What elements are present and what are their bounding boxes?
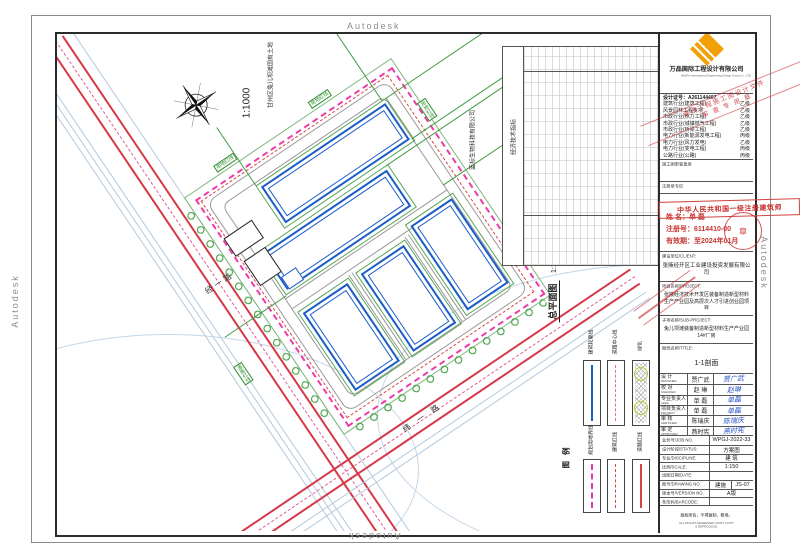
- econ-table-rule: [523, 215, 659, 216]
- autodesk-watermark-top: Autodesk: [347, 21, 401, 31]
- info-table: 业务号/JOB NO.WPGJ-2022-33 设计阶段/STATUS:方案图 …: [660, 436, 753, 506]
- subproject-section: 子项名称/SUB-PROJECT: 兔儿坝滩装备制造新型材料生产产业园14#厂房: [660, 316, 753, 344]
- signature-row: 审 定APPROVED 燕时宪 燕时宪: [660, 426, 753, 436]
- autodesk-watermark-bottom: Autodesk: [347, 531, 401, 541]
- legend-label: 绿化: [637, 341, 644, 351]
- legend-label: 建筑轮廓线: [588, 329, 595, 354]
- legend-line: [640, 464, 642, 508]
- north-compass-icon: [163, 72, 230, 139]
- signature: 单磊: [726, 395, 741, 406]
- autodesk-watermark-right: Autodesk: [759, 236, 769, 290]
- sheet-title: 1-1剖面: [662, 358, 751, 368]
- info-row: 版本号/VERSION NO.A版: [660, 489, 753, 498]
- qualification-row: 公路行业(公路)丙级: [660, 153, 753, 159]
- architect-stamp-title: 中华人民共和国一级注册建筑师: [659, 198, 800, 219]
- dimension-line: [385, 34, 483, 99]
- review-stamp-section: 施工图审查盖章: [660, 160, 753, 182]
- signature-row: 校 对CHECKED 赵 琳 赵琳: [660, 384, 753, 394]
- client-name: 张掖经开区工业建设投资发展有限公司: [662, 263, 751, 277]
- signature: 贾广武: [723, 374, 745, 385]
- legend-swatch-building-redline: [607, 459, 625, 513]
- client-section: 建设单位/CLIENT: 张掖经开区工业建设投资发展有限公司: [660, 252, 753, 282]
- round-seal-stamp: 章: [724, 212, 762, 250]
- legend-line: [615, 464, 616, 508]
- copyright-section: 版权所有，不得复制、套用。 ALL RIGHTS RESERVED, DON'T…: [660, 506, 753, 533]
- econ-table-caption: 经济技术指标: [509, 119, 518, 155]
- autodesk-watermark-left: Autodesk: [10, 274, 20, 328]
- legend-green-circle: [634, 401, 648, 415]
- company-name-en: WanPin International Engineering Design …: [681, 74, 732, 77]
- subproject-name: 兔儿坝滩装备制造新型材料生产产业园14#厂房: [662, 326, 751, 339]
- signature-table: 设 计DESIGNED 贾广武 贾广武 校 对CHECKED 赵 琳 赵琳 专业…: [660, 374, 753, 436]
- signature: 燕时宪: [723, 426, 745, 436]
- legend-swatch-road-redline: [632, 459, 650, 513]
- info-row-drawing-no: 图号/DRAWING NO.建施JS-07: [660, 480, 753, 489]
- signature-row: 项目负责人PROJECT CHIEF 单 磊 单磊: [660, 405, 753, 415]
- legend-swatch-building-outline: [583, 360, 601, 426]
- sheet-title-section: 图纸名称/TITLE: 1-1剖面: [660, 344, 753, 374]
- signature-row: 审 核CERTIFIED 陈瑞庆 陈瑞庆: [660, 415, 753, 425]
- legend-title: 图 例: [561, 445, 572, 468]
- copyright-en: ALL RIGHTS RESERVED, DON'T COPY & REPROD…: [679, 521, 735, 528]
- info-row: 出图日期/DATE:: [660, 471, 753, 480]
- copyright-zh: 版权所有，不得复制、套用。: [669, 513, 743, 519]
- info-row: 条形码/BARCODE:: [660, 497, 753, 506]
- legend-swatch-road-centerline: [607, 360, 625, 426]
- legend-line: [615, 365, 616, 421]
- legend-swatch-planning-boundary: [583, 459, 601, 513]
- econ-table-caption-col: [503, 47, 524, 265]
- legend-line: [591, 464, 593, 508]
- economic-indicator-table: 经济技术指标: [502, 46, 660, 266]
- legend-label: 建筑红线: [612, 432, 619, 452]
- info-row: 业务号/JOB NO.WPGJ-2022-33: [660, 436, 753, 445]
- plan-title: 总平面图: [548, 280, 560, 322]
- econ-table-rule: [523, 71, 659, 72]
- legend-label: 道路中心线: [612, 329, 619, 354]
- company-logo-icon: [690, 32, 724, 66]
- legend-label: 道路红线: [637, 432, 644, 452]
- registration-stamp-section: 注册章专栏: [660, 182, 753, 194]
- signature: 单磊: [726, 405, 741, 416]
- legend-swatch-greenery: [632, 360, 650, 426]
- legend-label: 规划用地界线: [588, 425, 595, 455]
- adjacent-company-label: 蓝标生物科技有限公司: [468, 110, 477, 170]
- legend-line: [591, 365, 593, 421]
- drawing-sheet: Autodesk Autodesk Autodesk Autodesk: [0, 0, 800, 558]
- land-parcel-label: 甘州区兔儿坝滩国有土地: [266, 42, 275, 108]
- company-name: 万品国际工程设计有限公司: [662, 63, 750, 73]
- info-row: 比例/SCALE:1:150: [660, 462, 753, 471]
- signature-row: 设 计DESIGNED 贾广武 贾广武: [660, 374, 753, 384]
- signature-row: 专业负责人LEED 单 磊 单磊: [660, 395, 753, 405]
- compass-scale-label: 1:1000: [242, 88, 253, 119]
- legend-green-circle: [634, 367, 648, 381]
- info-row: 设计阶段/STATUS:方案图: [660, 445, 753, 454]
- info-row: 专业/DISCIPLINE:建 筑: [660, 454, 753, 463]
